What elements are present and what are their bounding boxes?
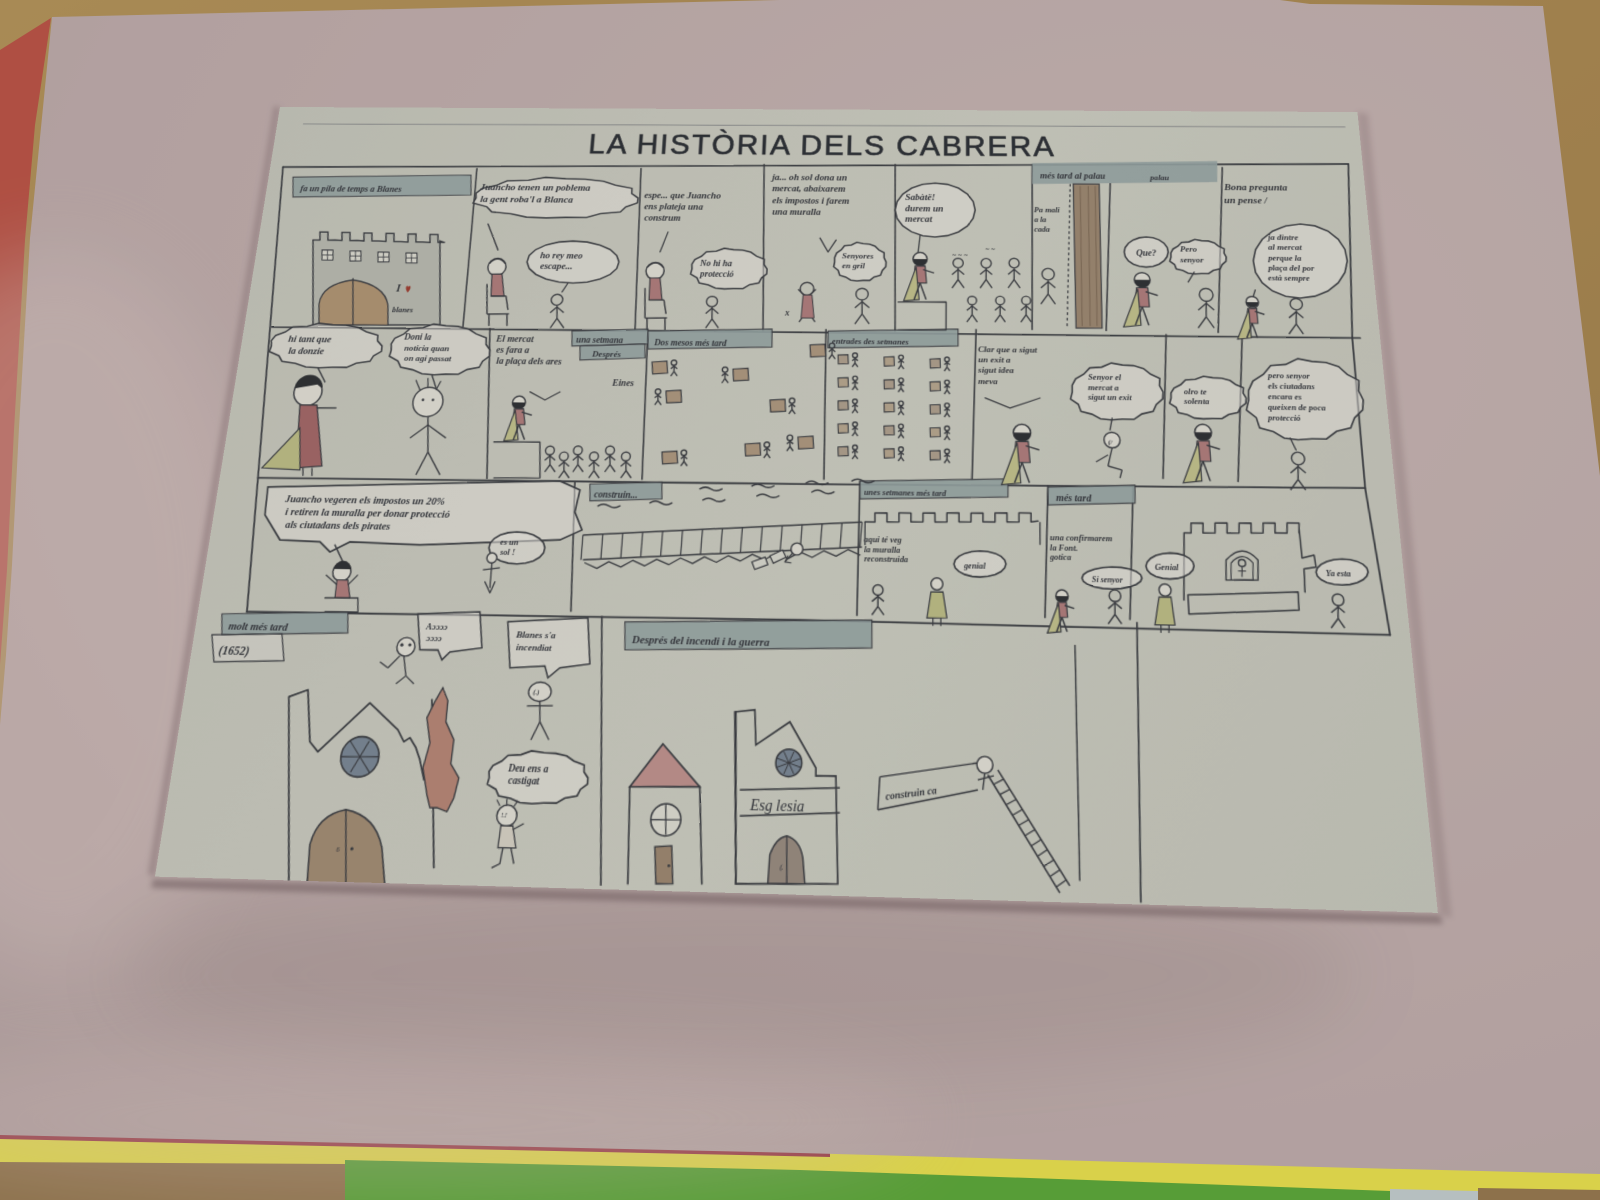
- svg-text:més tard al palau: més tard al palau: [1040, 171, 1106, 181]
- svg-text:ens plateja una: ens plateja una: [644, 201, 704, 212]
- svg-text:sol !: sol !: [499, 548, 516, 558]
- svg-text:un exit a: un exit a: [978, 355, 1011, 365]
- svg-text:encara es: encara es: [1268, 392, 1303, 402]
- svg-text:incendiat: incendiat: [516, 641, 553, 653]
- svg-text:Dos mesos més tard: Dos mesos més tard: [653, 337, 728, 348]
- svg-text:escape...: escape...: [540, 261, 573, 272]
- svg-text:la Font.: la Font.: [1050, 543, 1078, 553]
- svg-text:construin...: construin...: [594, 489, 638, 500]
- svg-text:hi tant que: hi tant que: [288, 333, 333, 344]
- svg-text:Doni la: Doni la: [403, 332, 432, 342]
- svg-text:protecció: protecció: [1266, 413, 1301, 423]
- svg-text:!.!: !.!: [501, 814, 508, 821]
- svg-text:una confirmarem: una confirmarem: [1050, 533, 1113, 544]
- svg-text:es fara a: es fara a: [496, 345, 530, 355]
- svg-text:(.: (.: [780, 866, 784, 873]
- svg-text:construm: construm: [644, 213, 682, 224]
- svg-text:mercat a: mercat a: [1088, 382, 1120, 393]
- svg-text:ja... oh sol dona un: ja... oh sol dona un: [770, 172, 848, 183]
- svg-text:(.): (.): [533, 689, 540, 698]
- svg-text:senyor: senyor: [1179, 255, 1204, 265]
- svg-text:reconstruida: reconstruida: [864, 555, 909, 565]
- svg-text:meva: meva: [978, 376, 998, 386]
- svg-text:Eines: Eines: [611, 378, 635, 388]
- svg-text:sigut idea: sigut idea: [977, 365, 1014, 375]
- svg-text:Pa mali: Pa mali: [1034, 206, 1060, 214]
- svg-text:on agi passat: on agi passat: [404, 353, 453, 363]
- svg-text:Ya esta: Ya esta: [1325, 569, 1351, 579]
- svg-text:Esg lesia: Esg lesia: [748, 795, 804, 815]
- svg-text:mercat: mercat: [905, 214, 933, 225]
- svg-text:noticia quan: noticia quan: [404, 343, 450, 353]
- svg-text:No hi ha: No hi ha: [699, 259, 733, 269]
- svg-text:gotica: gotica: [1049, 553, 1072, 563]
- svg-text:als ciutadans dels pirates: als ciutadans dels pirates: [285, 518, 392, 532]
- svg-text:palau: palau: [1149, 174, 1170, 182]
- svg-text:Genial: Genial: [1155, 563, 1179, 573]
- svg-text:ja dintre: ja dintre: [1267, 233, 1300, 243]
- svg-text:genial: genial: [963, 561, 986, 571]
- svg-text:fa un pila de temps a Blanes: fa un pila de temps a Blanes: [300, 184, 403, 194]
- svg-text:castigat: castigat: [508, 775, 541, 788]
- svg-text:plaça del por: plaça del por: [1267, 263, 1315, 273]
- svg-text:Blanes s'a: Blanes s'a: [514, 629, 556, 641]
- svg-text:sigut un exit: sigut un exit: [1087, 393, 1133, 403]
- svg-text:Deu ens a: Deu ens a: [506, 763, 549, 776]
- svg-text:els impostos i farem: els impostos i farem: [772, 195, 850, 206]
- svg-text:El mercat: El mercat: [495, 334, 535, 344]
- svg-text:entrades des setmanes: entrades des setmanes: [832, 336, 909, 347]
- svg-text:Senyor el: Senyor el: [1088, 372, 1123, 383]
- svg-text:aqui té veg: aqui té veg: [864, 535, 902, 545]
- svg-text:a la: a la: [1034, 216, 1047, 224]
- svg-text:mercat, abaixarem: mercat, abaixarem: [772, 183, 846, 194]
- svg-text:Aɔɔɔɔ: Aɔɔɔɔ: [424, 621, 449, 633]
- svg-text:unes setmanes més tard: unes setmanes més tard: [864, 488, 947, 499]
- svg-text:més tard: més tard: [1056, 493, 1093, 504]
- svg-text:Bona pregunta: Bona pregunta: [1223, 182, 1289, 193]
- svg-text:Si senyor: Si senyor: [1092, 576, 1124, 585]
- svg-text:olro te: olro te: [1184, 387, 1208, 396]
- svg-text:pero senyor: pero senyor: [1266, 370, 1310, 381]
- svg-text:molt més tard: molt més tard: [228, 620, 290, 633]
- svg-text:~ ~: ~ ~: [985, 247, 995, 254]
- svg-text:Juancho tenen un poblema: Juancho tenen un poblema: [479, 182, 592, 193]
- svg-text:la donzie: la donzie: [288, 345, 325, 356]
- svg-text:Que?: Que?: [1136, 249, 1157, 259]
- svg-text:un pense /: un pense /: [1224, 195, 1270, 206]
- svg-text:al mercat: al mercat: [1268, 243, 1303, 253]
- svg-text:LA HISTÒRIA DELS CABRERA: LA HISTÒRIA DELS CABRERA: [587, 129, 1056, 163]
- svg-text:blanes: blanes: [392, 306, 414, 315]
- svg-text:queixen de poca: queixen de poca: [1268, 403, 1327, 413]
- svg-text:la plaça dels ares: la plaça dels ares: [496, 356, 562, 367]
- svg-text:perque la: perque la: [1267, 253, 1303, 263]
- svg-text:ho rey meo: ho rey meo: [540, 250, 583, 261]
- svg-text:els ciutadans: els ciutadans: [1268, 381, 1316, 392]
- svg-text:cada: cada: [1034, 226, 1050, 234]
- svg-text:la gent roba'l a Blanca: la gent roba'l a Blanca: [480, 194, 574, 205]
- svg-text:~ ~ ~: ~ ~ ~: [952, 253, 968, 261]
- svg-text:solenta: solenta: [1183, 397, 1210, 406]
- svg-text:espe... que Juancho: espe... que Juancho: [644, 190, 722, 201]
- svg-text:es un: es un: [500, 538, 519, 548]
- svg-text:Sabàtë!: Sabàtë!: [905, 192, 935, 202]
- svg-text:protecció: protecció: [699, 269, 734, 279]
- svg-text:una muralla: una muralla: [772, 206, 822, 217]
- svg-text:la muralla: la muralla: [864, 545, 901, 555]
- svg-text:Clar que a sigut: Clar que a sigut: [978, 344, 1038, 355]
- svg-text:en gril: en gril: [842, 261, 866, 271]
- svg-text:està sempre: està sempre: [1268, 272, 1311, 282]
- svg-text:Senyores: Senyores: [842, 251, 874, 261]
- svg-text:Després: Després: [591, 349, 622, 359]
- svg-text:ɔɔɔɔ: ɔɔɔɔ: [426, 632, 444, 643]
- svg-text:Pero: Pero: [1180, 245, 1198, 255]
- svg-text:una setmana: una setmana: [576, 335, 624, 345]
- svg-text:durem un: durem un: [905, 203, 944, 214]
- svg-text:(1652): (1652): [217, 645, 250, 659]
- svg-text:x: x: [784, 308, 790, 318]
